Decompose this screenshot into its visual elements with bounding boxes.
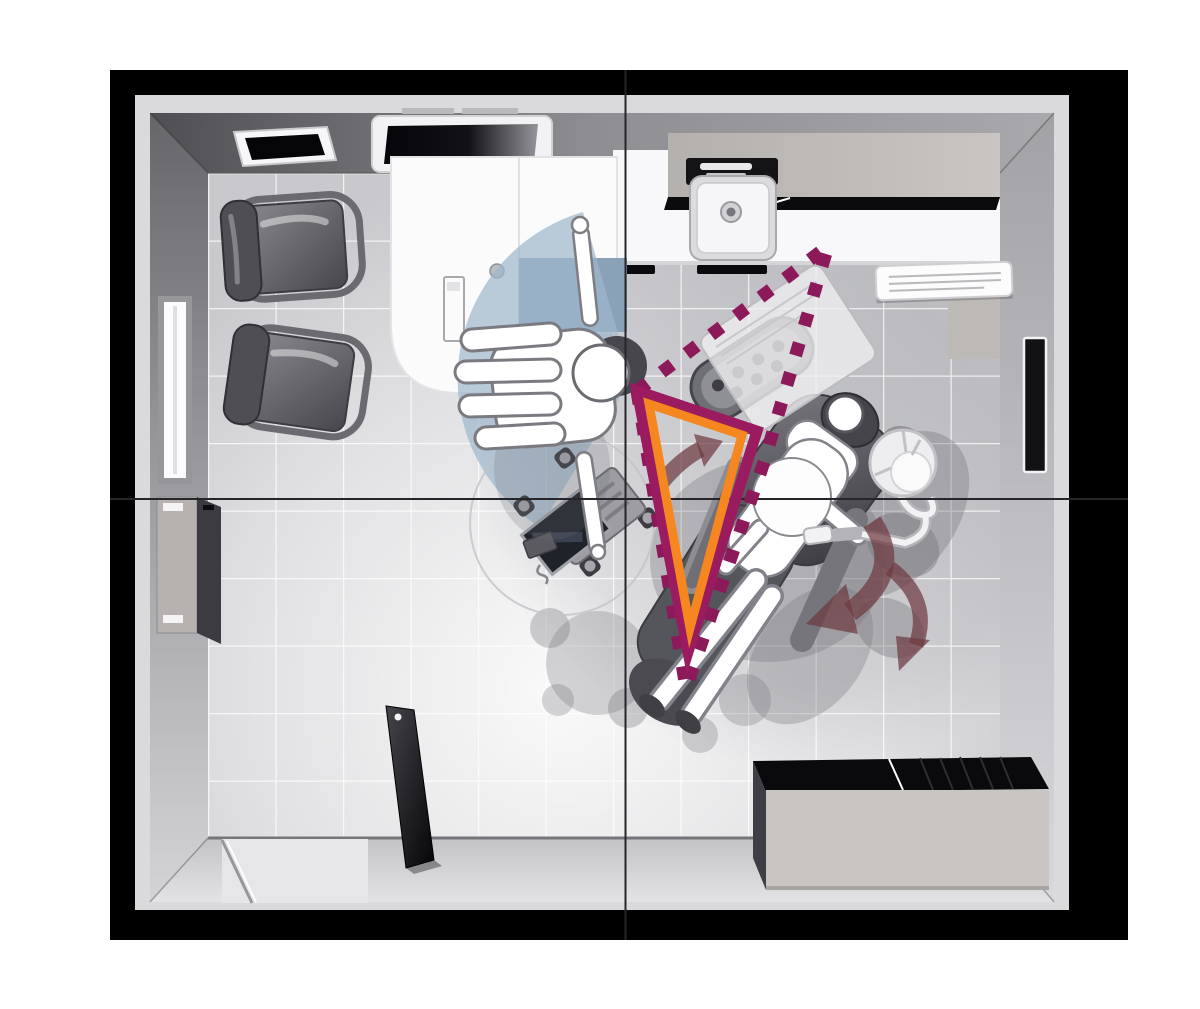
storage-cabinet-left	[157, 497, 221, 644]
desk-panel	[444, 277, 464, 341]
door-handle	[395, 714, 402, 721]
door-opening	[222, 839, 368, 903]
sink	[686, 158, 778, 260]
floor-plan-figure	[0, 0, 1200, 1009]
ceiling-vent	[234, 127, 336, 166]
wall-window	[158, 296, 192, 484]
patient-head	[827, 396, 863, 432]
clinician-head	[573, 345, 629, 401]
wall-niche	[1024, 338, 1046, 472]
sideboard	[753, 757, 1049, 890]
pullout-shelf	[875, 262, 1012, 304]
waiting-chair	[220, 193, 365, 302]
